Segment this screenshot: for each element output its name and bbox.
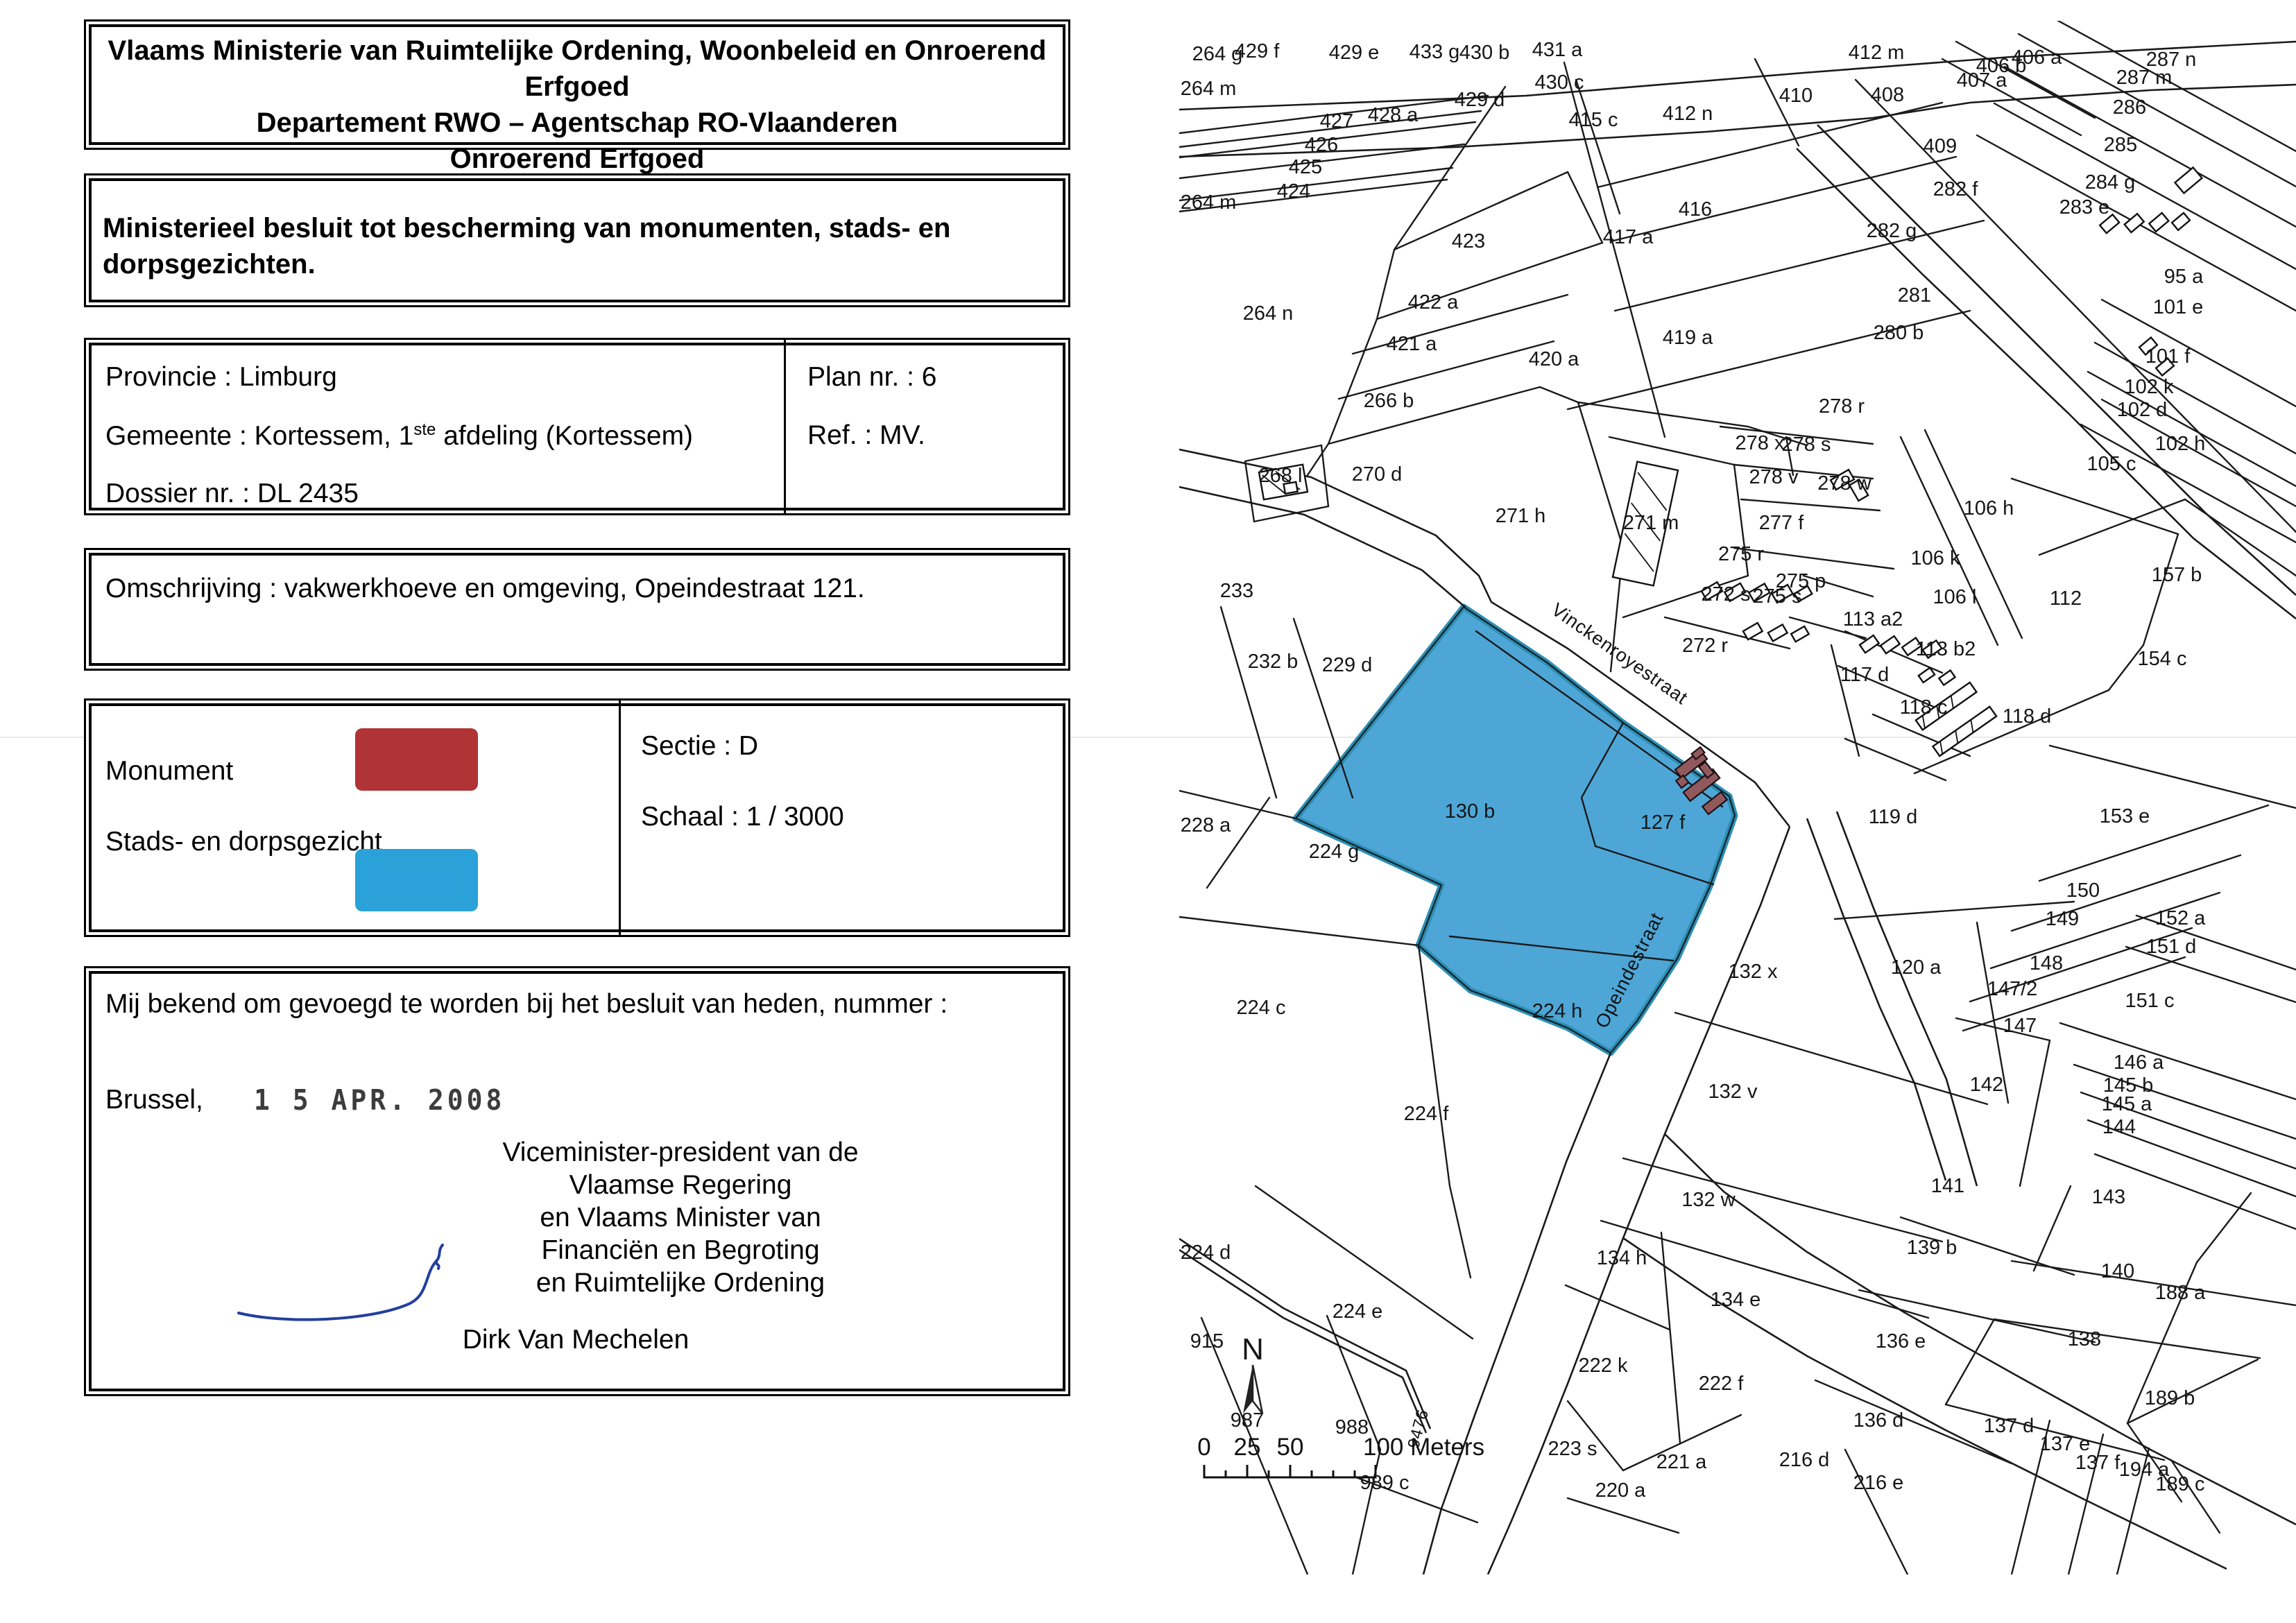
parcel-label: 278 r <box>1819 395 1865 418</box>
parcel-label: 264 m <box>1181 78 1237 100</box>
parcel-label: 102 k <box>2125 376 2174 398</box>
parcel-label: 106 k <box>1911 547 1960 569</box>
parcel-label: 101 e <box>2153 296 2204 318</box>
parcel-label: 147 <box>2003 1015 2037 1037</box>
parcel-label: 224 e <box>1333 1300 1383 1323</box>
parcel-label: 141 <box>1931 1175 1964 1197</box>
cadastral-map: N 0 25 50 100 Meters 264 g429 f429 e433 … <box>1179 21 2296 1574</box>
header-box: Vlaams Ministerie van Ruimtelijke Ordeni… <box>84 19 1070 150</box>
parcel-label: 275 r <box>1718 543 1764 565</box>
parcel-label: 224 d <box>1181 1242 1231 1264</box>
scale-bar: 0 25 50 100 Meters <box>1197 1434 1484 1477</box>
parcel-label: 137 f <box>2075 1452 2121 1474</box>
parcel-label: 410 <box>1779 85 1813 107</box>
parcel-label: 151 c <box>2125 990 2175 1012</box>
parcel-label: 113 b2 <box>1916 638 1976 660</box>
parcel-label: 280 b <box>1874 322 1924 344</box>
parcel-label: 425 <box>1289 156 1322 178</box>
decree-line2: dorpsgezichten. <box>103 246 1068 282</box>
parcel-label: 152 a <box>2155 907 2206 929</box>
parcel-label: 105 c <box>2087 453 2136 475</box>
signature-box: Mij bekend om gevoegd te worden bij het … <box>84 966 1070 1396</box>
parcel-label: 286 <box>2113 96 2146 119</box>
sectie-field: Sectie : D <box>641 731 758 762</box>
parcel-label: 102 d <box>2117 399 2168 421</box>
svg-text:50: 50 <box>1277 1434 1304 1461</box>
parcel-label: 272 s <box>1702 583 1751 606</box>
parcel-label: 426 <box>1305 134 1338 156</box>
parcel-label: 408 <box>1871 84 1904 106</box>
omschrijving-field: Omschrijving : vakwerkhoeve en omgeving,… <box>105 574 865 604</box>
parcel-label: 222 k <box>1579 1355 1628 1377</box>
parcel-label: 989 c <box>1360 1472 1410 1494</box>
parcel-label: 278 w <box>1817 472 1871 495</box>
parcel-label: 421 a <box>1387 333 1437 355</box>
svg-text:25: 25 <box>1234 1434 1261 1461</box>
province-box: Provincie : Limburg Gemeente : Kortessem… <box>84 338 1070 515</box>
signature-stroke <box>235 1242 471 1332</box>
parcel-label: 134 h <box>1597 1247 1647 1269</box>
parcel-label: 221 a <box>1656 1451 1707 1473</box>
stadsgezicht-color-swatch <box>355 849 478 911</box>
parcel-label: 407 a <box>1957 69 2007 92</box>
parcel-label: 189 c <box>2156 1473 2205 1495</box>
parcel-label: 224 g <box>1309 841 1360 863</box>
buildings <box>1259 167 2202 756</box>
parcel-label: 264 n <box>1243 302 1294 325</box>
parcel-label: 113 a2 <box>1843 608 1903 630</box>
parcel-label: 287 m <box>2116 67 2173 89</box>
decree-box: Ministerieel besluit tot bescherming van… <box>84 173 1070 307</box>
parcel-label: 228 a <box>1181 814 1231 836</box>
parcel-label: 106 h <box>1964 497 2014 519</box>
department-title: Departement RWO – Agentschap RO-Vlaander… <box>86 105 1068 141</box>
parcel-label: 285 <box>2104 134 2137 156</box>
provincie-field: Provincie : Limburg <box>105 362 337 393</box>
parcel-label: 147/2 <box>1987 978 2038 1000</box>
parcel-label: 153 e <box>2100 805 2150 827</box>
parcel-label: 117 d <box>1840 664 1889 686</box>
parcel-label: 132 v <box>1708 1081 1758 1103</box>
parcel-label: 423 <box>1452 230 1485 252</box>
parcel-label: 132 x <box>1729 961 1778 983</box>
parcel-label: 270 d <box>1352 463 1403 486</box>
parcel-label: 145 a <box>2102 1093 2152 1115</box>
parcel-label: 216 e <box>1853 1472 1904 1494</box>
description-box: Omschrijving : vakwerkhoeve en omgeving,… <box>84 548 1070 671</box>
column-divider <box>784 340 786 513</box>
parcel-label: 233 <box>1220 580 1253 602</box>
parcel-label: 420 a <box>1529 348 1579 370</box>
parcel-label: 431 a <box>1532 39 1583 61</box>
parcel-label: 419 a <box>1663 327 1713 349</box>
parcel-label: 278 x <box>1736 432 1785 454</box>
parcel-label: 283 e <box>2059 196 2110 218</box>
parcel-label: 422 a <box>1408 291 1459 314</box>
parcel-label: 417 a <box>1603 226 1654 248</box>
parcel-label: 102 h <box>2155 433 2206 455</box>
parcel-label: 224 c <box>1237 997 1286 1019</box>
parcel-label: 232 b <box>1248 651 1299 673</box>
parcel-label: 268 l <box>1259 465 1303 487</box>
parcel-label: 137 d <box>1984 1415 2034 1437</box>
parcel-label: 148 <box>2030 952 2063 974</box>
gemeente-field: Gemeente : Kortessem, 1ste afdeling (Kor… <box>105 420 693 452</box>
ministry-title: Vlaams Ministerie van Ruimtelijke Ordeni… <box>86 33 1068 105</box>
parcel-label: 151 d <box>2146 936 2197 958</box>
agency-title: Onroerend Erfgoed <box>86 141 1068 177</box>
compass-n-label: N <box>1242 1332 1264 1366</box>
city-label: Brussel, <box>105 1085 203 1115</box>
parcel-label: 136 e <box>1876 1330 1926 1352</box>
parcel-label: 430 c <box>1535 71 1584 94</box>
parcel-label: 266 b <box>1364 390 1414 412</box>
signer-name: Dirk Van Mechelen <box>463 1323 689 1356</box>
parcel-label: 134 e <box>1711 1289 1761 1311</box>
legend-divider <box>619 701 621 935</box>
parcel-label: 429 f <box>1235 40 1280 62</box>
parcel-label: 118 d <box>2003 705 2051 728</box>
svg-text:0: 0 <box>1197 1434 1210 1461</box>
parcel-label: 146 a <box>2114 1051 2164 1074</box>
parcel-label: 106 l <box>1933 586 1977 608</box>
date-stamp: 1 5 APR. 2008 <box>254 1083 505 1117</box>
parcel-label: 222 f <box>1699 1373 1744 1395</box>
monument-color-swatch <box>355 728 478 791</box>
parcel-label: 277 f <box>1759 512 1804 534</box>
parcel-label: 429 d <box>1455 89 1505 111</box>
parcel-label: 138 <box>2068 1328 2101 1350</box>
parcel-label: 220 a <box>1595 1479 1646 1502</box>
parcel-label: 412 n <box>1663 103 1713 125</box>
legend-monument-label: Monument <box>105 756 233 787</box>
parcel-label: 157 b <box>2152 564 2202 586</box>
parcel-label: 433 g <box>1410 41 1460 63</box>
parcel-label: 189 b <box>2145 1387 2195 1409</box>
parcel-label: 409 <box>1924 135 1957 157</box>
parcel-label: 143 <box>2092 1186 2125 1208</box>
parcel-label: 412 m <box>1849 42 1905 64</box>
parcel-label: 142 <box>1970 1074 2003 1096</box>
parcel-label: 154 c <box>2138 648 2187 670</box>
parcel-label: 149 <box>2046 908 2079 930</box>
parcel-label: 118 c <box>1900 696 1948 719</box>
parcel-label: 119 d <box>1869 806 1917 828</box>
parcel-label: 424 <box>1277 180 1310 203</box>
parcel-label: 271 h <box>1496 505 1546 527</box>
parcel-label: 136 d <box>1853 1409 1904 1432</box>
parcel-label: 132 w <box>1681 1189 1736 1211</box>
parcel-label: 278 s <box>1782 433 1831 456</box>
parcel-label: 987 <box>1231 1409 1264 1432</box>
parcel-label: 416 <box>1679 198 1712 221</box>
parcel-label: 428 a <box>1368 104 1419 126</box>
parcel-label: 101 f <box>2145 345 2191 368</box>
parcel-label: 223 s <box>1548 1438 1597 1460</box>
parcel-label: 120 a <box>1891 956 1942 979</box>
scanned-decree-page: Vlaams Ministerie van Ruimtelijke Ordeni… <box>0 0 2296 1623</box>
parcel-label: 915 <box>1190 1330 1224 1352</box>
parcel-label: 282 g <box>1867 220 1917 242</box>
parcel-label: 281 <box>1898 284 1931 307</box>
parcel-label: 282 f <box>1933 178 1978 200</box>
parcel-label: 427 <box>1320 110 1353 132</box>
parcel-label: 95 a <box>2164 266 2204 288</box>
parcel-label: 150 <box>2066 879 2100 902</box>
parcel-label: 284 g <box>2085 171 2136 194</box>
parcel-label: 224 h <box>1532 1000 1583 1022</box>
north-compass: N <box>1242 1332 1264 1414</box>
parcel-label: 988 <box>1335 1416 1369 1439</box>
parcel-label: 188 a <box>2155 1282 2206 1304</box>
decree-line1: Ministerieel besluit tot bescherming van… <box>103 210 1068 246</box>
parcel-label: 264 m <box>1181 191 1237 214</box>
parcel-label: 112 <box>2050 587 2082 610</box>
parcel-label: 229 d <box>1322 654 1373 676</box>
parcel-label: 271 m <box>1623 512 1679 534</box>
besluit-line: Mij bekend om gevoegd te worden bij het … <box>105 989 948 1020</box>
parcel-label: 224 f <box>1404 1103 1449 1125</box>
minister-title-block: Viceminister-president van de Vlaamse Re… <box>487 1136 875 1299</box>
parcel-label: 429 e <box>1329 42 1380 64</box>
parcel-label: 275 s <box>1753 585 1802 608</box>
dossier-field: Dossier nr. : DL 2435 <box>105 479 359 509</box>
parcel-label: 140 <box>2101 1260 2134 1282</box>
parcel-label: 272 r <box>1682 635 1728 657</box>
parcel-label: 139 b <box>1907 1237 1957 1259</box>
plan-nr-field: Plan nr. : 6 <box>807 362 936 393</box>
parcel-label: 278 v <box>1749 466 1799 488</box>
parcel-label: 130 b <box>1445 800 1496 823</box>
parcel-label: 216 d <box>1779 1449 1830 1471</box>
parcel-label: 415 c <box>1569 109 1618 131</box>
ref-field: Ref. : MV. <box>807 420 925 451</box>
schaal-field: Schaal : 1 / 3000 <box>641 802 844 832</box>
parcel-label: 144 <box>2102 1116 2136 1138</box>
legend-stadsgezicht-label: Stads- en dorpsgezicht <box>105 827 382 857</box>
legend-box: Monument Stads- en dorpsgezicht Sectie :… <box>84 698 1070 937</box>
parcel-label: 430 b <box>1459 42 1510 64</box>
parcel-label: 127 f <box>1640 811 1686 834</box>
